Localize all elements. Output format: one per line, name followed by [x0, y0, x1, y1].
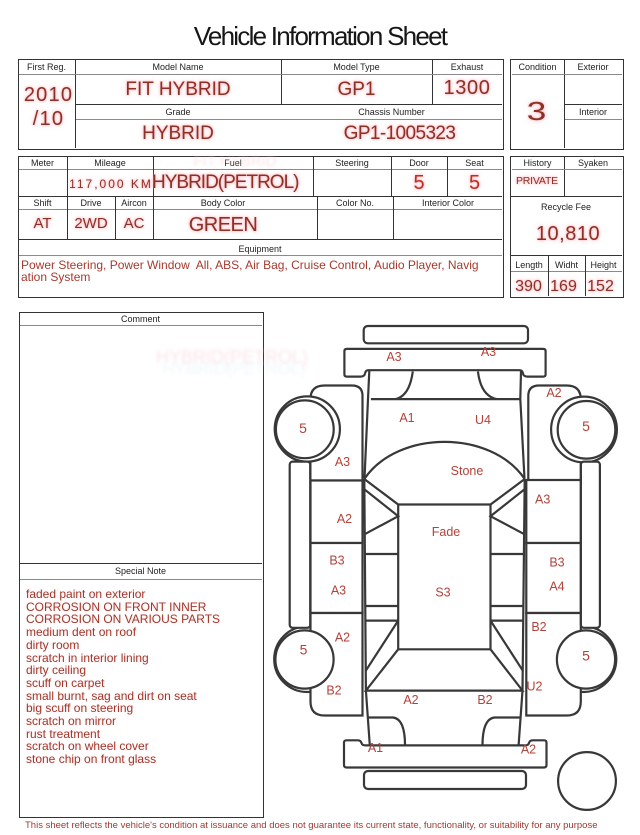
svg-text:S3: S3 — [435, 586, 450, 600]
svg-text:A3: A3 — [535, 493, 550, 507]
svg-text:U4: U4 — [475, 413, 491, 427]
svg-text:A2: A2 — [521, 743, 536, 757]
svg-text:5: 5 — [300, 642, 308, 658]
svg-text:5: 5 — [582, 648, 590, 664]
svg-text:A4: A4 — [549, 580, 564, 594]
svg-text:U2: U2 — [527, 680, 543, 694]
svg-text:A2: A2 — [335, 631, 350, 645]
svg-text:5: 5 — [582, 418, 590, 434]
svg-text:A2: A2 — [337, 512, 352, 526]
svg-text:A3: A3 — [335, 455, 350, 469]
svg-text:A3: A3 — [331, 584, 346, 598]
svg-text:B2: B2 — [477, 693, 492, 707]
svg-text:5: 5 — [299, 420, 307, 436]
svg-text:A1: A1 — [399, 411, 414, 425]
svg-text:B2: B2 — [531, 620, 546, 634]
svg-text:Fade: Fade — [432, 525, 461, 539]
svg-text:A2: A2 — [403, 693, 418, 707]
svg-text:B3: B3 — [329, 554, 344, 568]
svg-text:A1: A1 — [368, 741, 383, 755]
svg-text:Stone: Stone — [451, 464, 484, 478]
svg-text:A3: A3 — [481, 345, 496, 359]
svg-text:A3: A3 — [386, 350, 401, 364]
svg-text:A2: A2 — [546, 386, 561, 400]
svg-text:B3: B3 — [549, 556, 564, 570]
svg-text:B2: B2 — [326, 684, 341, 698]
